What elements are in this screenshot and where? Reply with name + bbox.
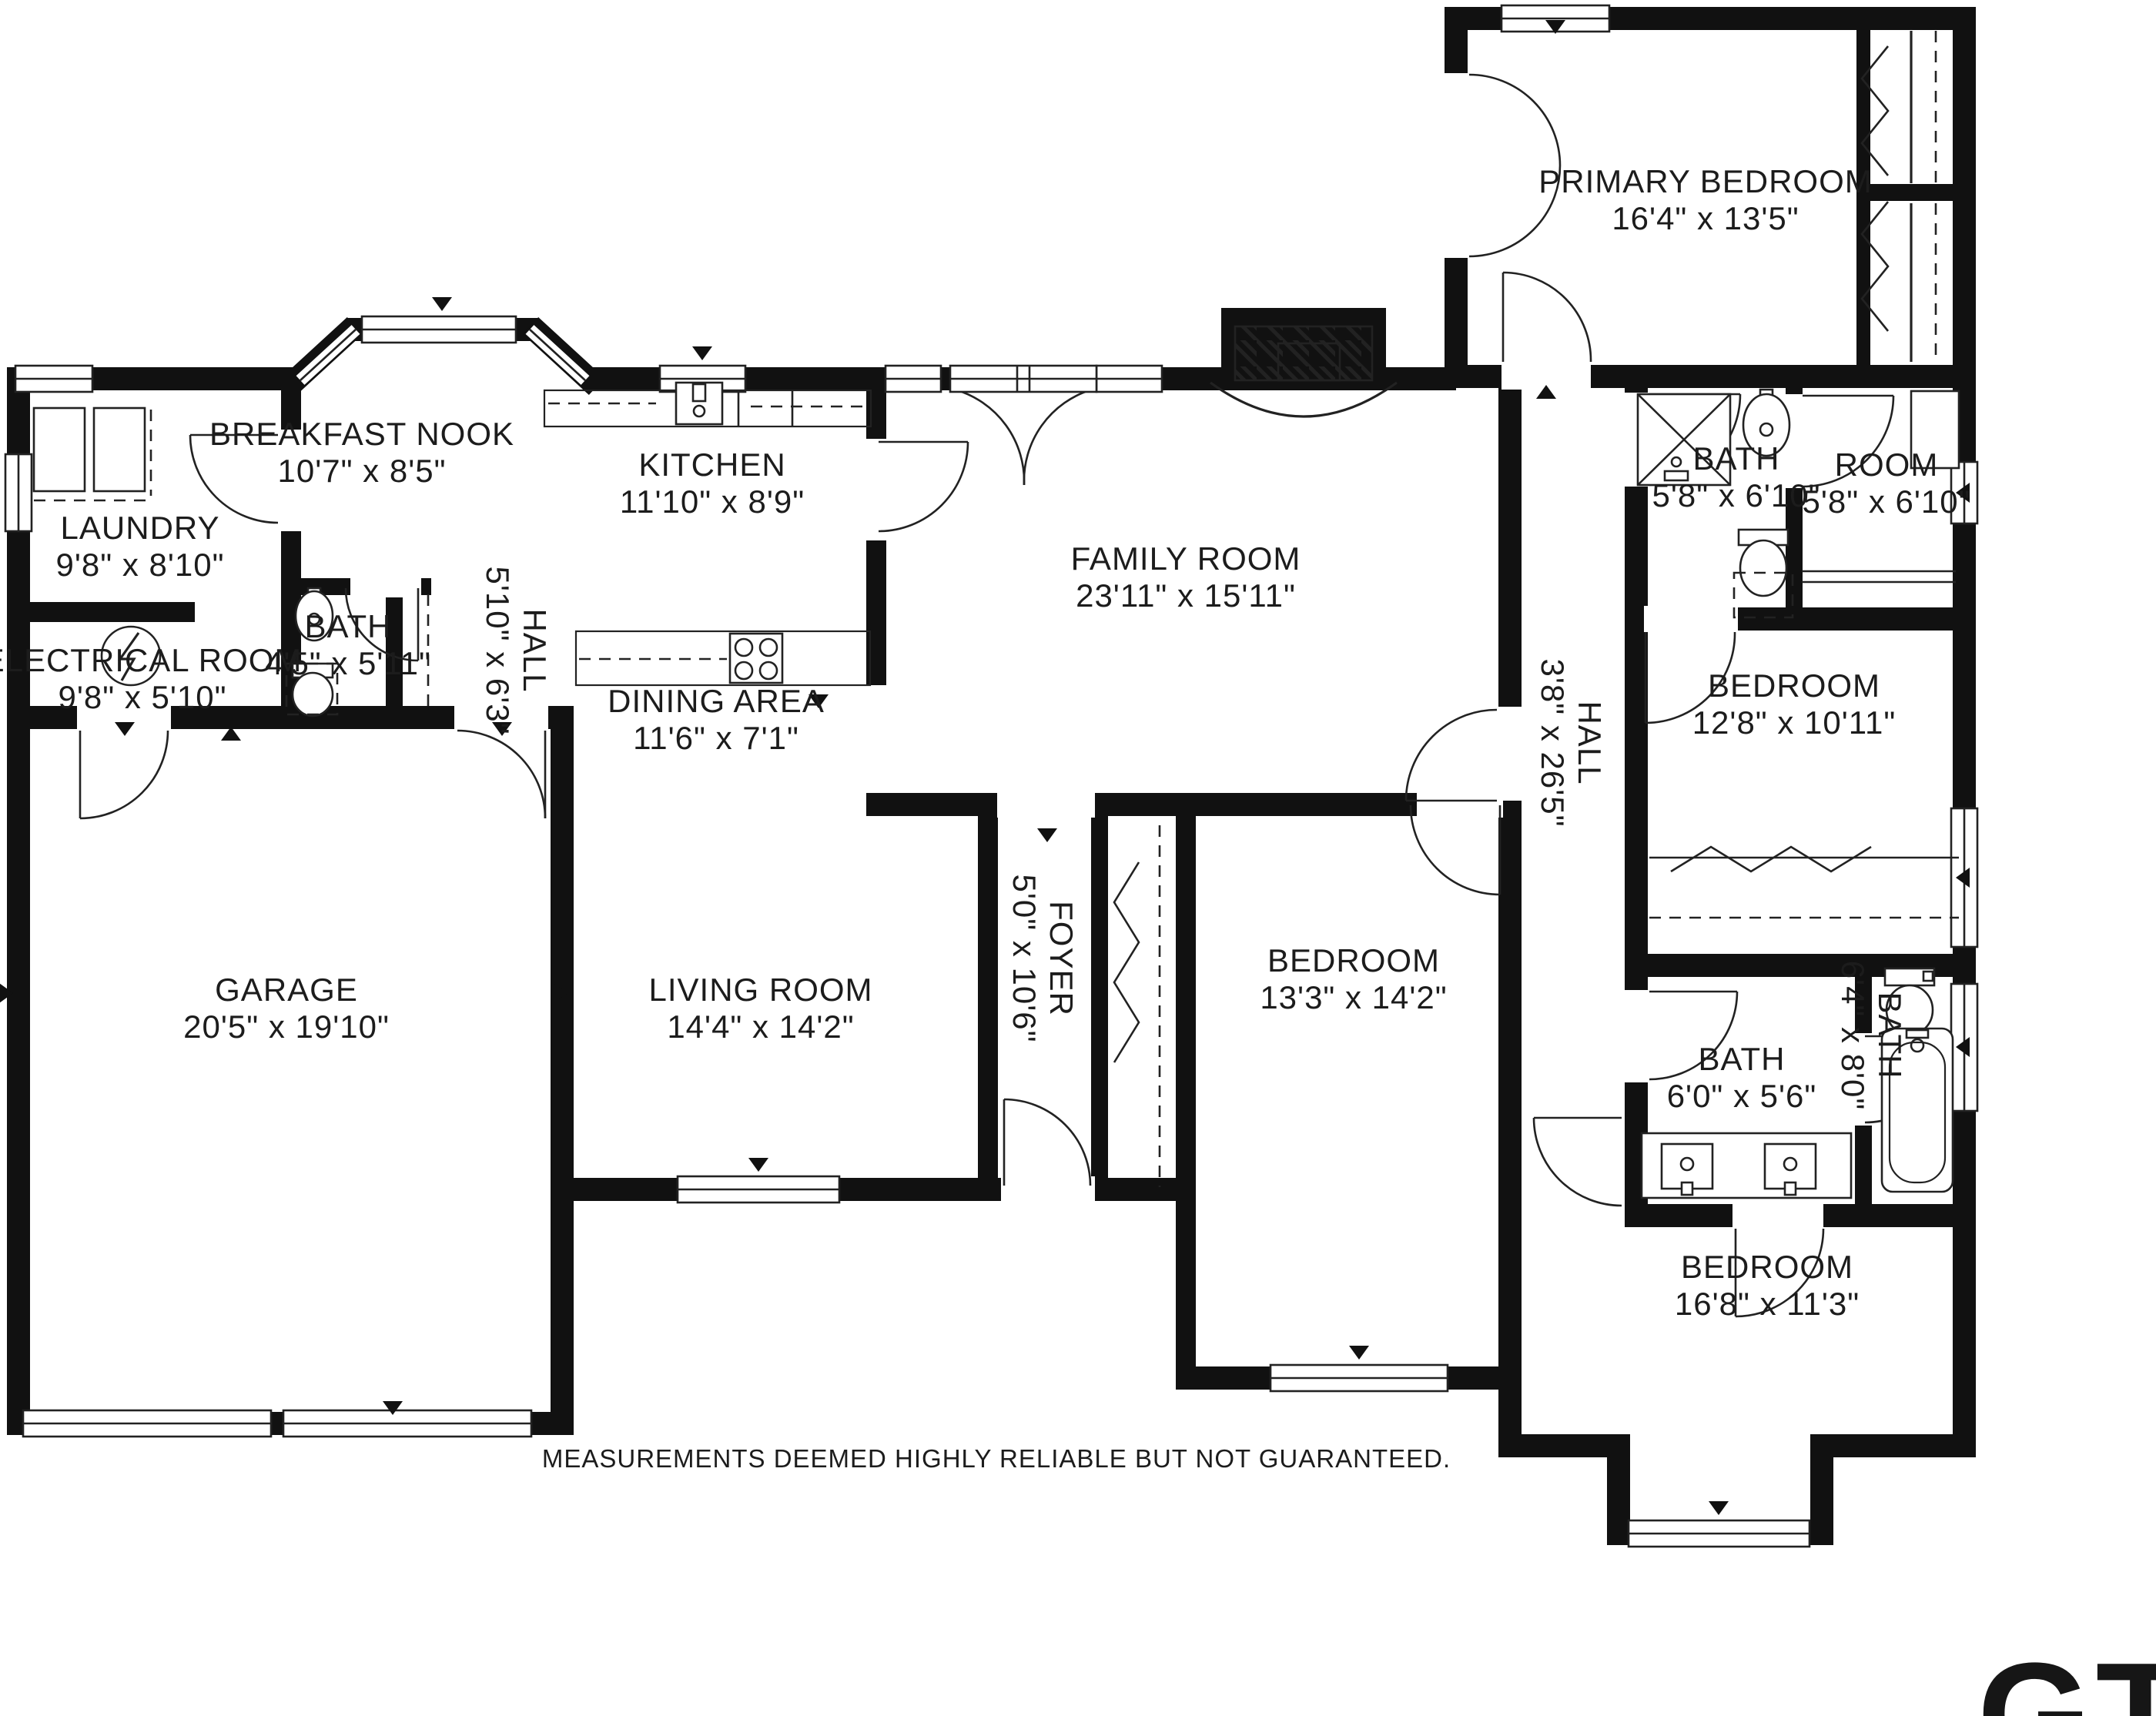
room-label-family-room: FAMILY ROOM23'11" x 15'11": [1071, 540, 1301, 614]
room-name: HALL: [1572, 701, 1608, 784]
plan-geometry: [1732, 1203, 1823, 1229]
room-name: BEDROOM: [1681, 1249, 1853, 1285]
room-dimensions: 20'5" x 19'10": [183, 1009, 390, 1045]
plan-geometry: [1001, 1176, 1095, 1203]
room-dimensions: 16'8" x 11'3": [1675, 1286, 1860, 1322]
window-icon: [1270, 1365, 1448, 1391]
window-icon: [1096, 366, 1162, 392]
room-label-bedroom-right: BEDROOM12'8" x 10'11": [1692, 667, 1897, 741]
room-dimensions: 6'0" x 5'6": [1667, 1078, 1817, 1114]
room-label-bedroom-bottom: BEDROOM16'8" x 11'3": [1675, 1249, 1860, 1322]
room-dimensions: 4'5" x 5'11": [265, 645, 431, 681]
room-name: BATH: [305, 608, 392, 644]
floor-plan-page: PRIMARY BEDROOM16'4" x 13'5"BREAKFAST NO…: [0, 0, 2156, 1716]
room-name: FAMILY ROOM: [1071, 540, 1301, 577]
room-dimensions: 9'8" x 8'10": [56, 547, 225, 583]
room-dimensions: 12'8" x 10'11": [1692, 704, 1897, 741]
window-icon: [283, 1410, 531, 1437]
window-icon: [15, 366, 92, 392]
room-name: BEDROOM: [1708, 667, 1880, 704]
disclaimer-text: MEASUREMENTS DEEMED HIGHLY RELIABLE BUT …: [542, 1444, 1451, 1473]
room-dimensions: 14'4" x 14'2": [667, 1009, 854, 1045]
plan-geometry: [1623, 990, 1649, 1082]
plan-geometry: [1443, 73, 1469, 258]
room-name: KITCHEN: [638, 447, 785, 483]
room-dimensions: 23'11" x 15'11": [1076, 577, 1296, 614]
window-icon: [950, 366, 1096, 392]
room-name: BEDROOM: [1267, 942, 1440, 978]
window-icon: [362, 316, 516, 343]
room-label-laundry: LAUNDRY9'8" x 8'10": [56, 510, 225, 583]
plan-geometry: [350, 576, 421, 597]
room-dimensions: 9'8" x 5'10": [59, 679, 227, 715]
room-dimensions: 5'8" x 6'10": [1652, 477, 1821, 513]
window-icon: [23, 1410, 271, 1437]
plan-geometry: [693, 384, 705, 401]
room-name: GARAGE: [215, 972, 358, 1008]
plan-geometry: [94, 408, 145, 491]
room-name: PRIMARY BEDROOM: [1538, 163, 1873, 199]
room-dimensions: 13'3" x 14'2": [1260, 979, 1447, 1015]
plan-geometry: [1740, 540, 1786, 596]
room-dimensions: 10'7" x 8'5": [278, 453, 447, 489]
room-name: DINING AREA: [608, 683, 825, 719]
room-dimensions: 6'4" x 8'0": [1835, 961, 1871, 1111]
room-name: ELECTRICAL ROOM: [0, 642, 302, 678]
plan-geometry: [1682, 1182, 1692, 1195]
room-name: HALL: [517, 608, 553, 692]
window-icon: [885, 366, 941, 392]
window-icon: [5, 454, 32, 531]
room-dimensions: 5'10" x 6'3": [480, 567, 516, 735]
plan-geometry: [1923, 972, 1933, 981]
window-icon: [1629, 1520, 1809, 1547]
watermark-logo: GTAR: [1977, 1633, 2156, 1716]
room-dimensions: 5'0" x 10'6": [1006, 875, 1043, 1043]
room-dimensions: 5'8" x 6'10": [1803, 483, 1971, 520]
plan-geometry: [1417, 791, 1503, 818]
room-label-dining-area: DINING AREA11'6" x 7'1": [608, 683, 825, 756]
plan-geometry: [1644, 606, 1738, 632]
room-label-living-room: LIVING ROOM14'4" x 14'2": [648, 972, 872, 1045]
plan-geometry: [1785, 394, 1803, 488]
room-dimensions: 11'10" x 8'9": [620, 483, 805, 520]
plan-geometry: [1907, 1030, 1928, 1038]
room-dimensions: 16'4" x 13'5": [1612, 200, 1799, 236]
room-name: LIVING ROOM: [648, 972, 872, 1008]
floor-plan-image: PRIMARY BEDROOM16'4" x 13'5"BREAKFAST NO…: [0, 0, 2156, 1716]
room-name: BATH: [1699, 1041, 1786, 1077]
vanity-sinks-icon: [1642, 1133, 1851, 1198]
room-label-kitchen: KITCHEN11'10" x 8'9": [620, 447, 805, 520]
room-dimensions: 3'8" x 26'5": [1535, 659, 1571, 828]
room-dimensions: 11'6" x 7'1": [633, 720, 799, 756]
plan-geometry: [1785, 1182, 1796, 1195]
room-name: LAUNDRY: [61, 510, 220, 546]
window-icon: [678, 1176, 839, 1203]
room-name: BATH: [1693, 440, 1780, 477]
room-label-bedroom-middle: BEDROOM13'3" x 14'2": [1260, 942, 1447, 1015]
room-name: ROOM: [1835, 447, 1939, 483]
plan-geometry: [1278, 343, 1340, 380]
room-name: FOYER: [1043, 901, 1080, 1016]
plan-geometry: [1497, 707, 1523, 801]
room-name: BATH: [1872, 992, 1908, 1079]
plan-geometry: [997, 791, 1095, 818]
plan-geometry: [863, 439, 889, 540]
room-name: BREAKFAST NOOK: [209, 416, 514, 452]
plan-geometry: [34, 408, 85, 491]
